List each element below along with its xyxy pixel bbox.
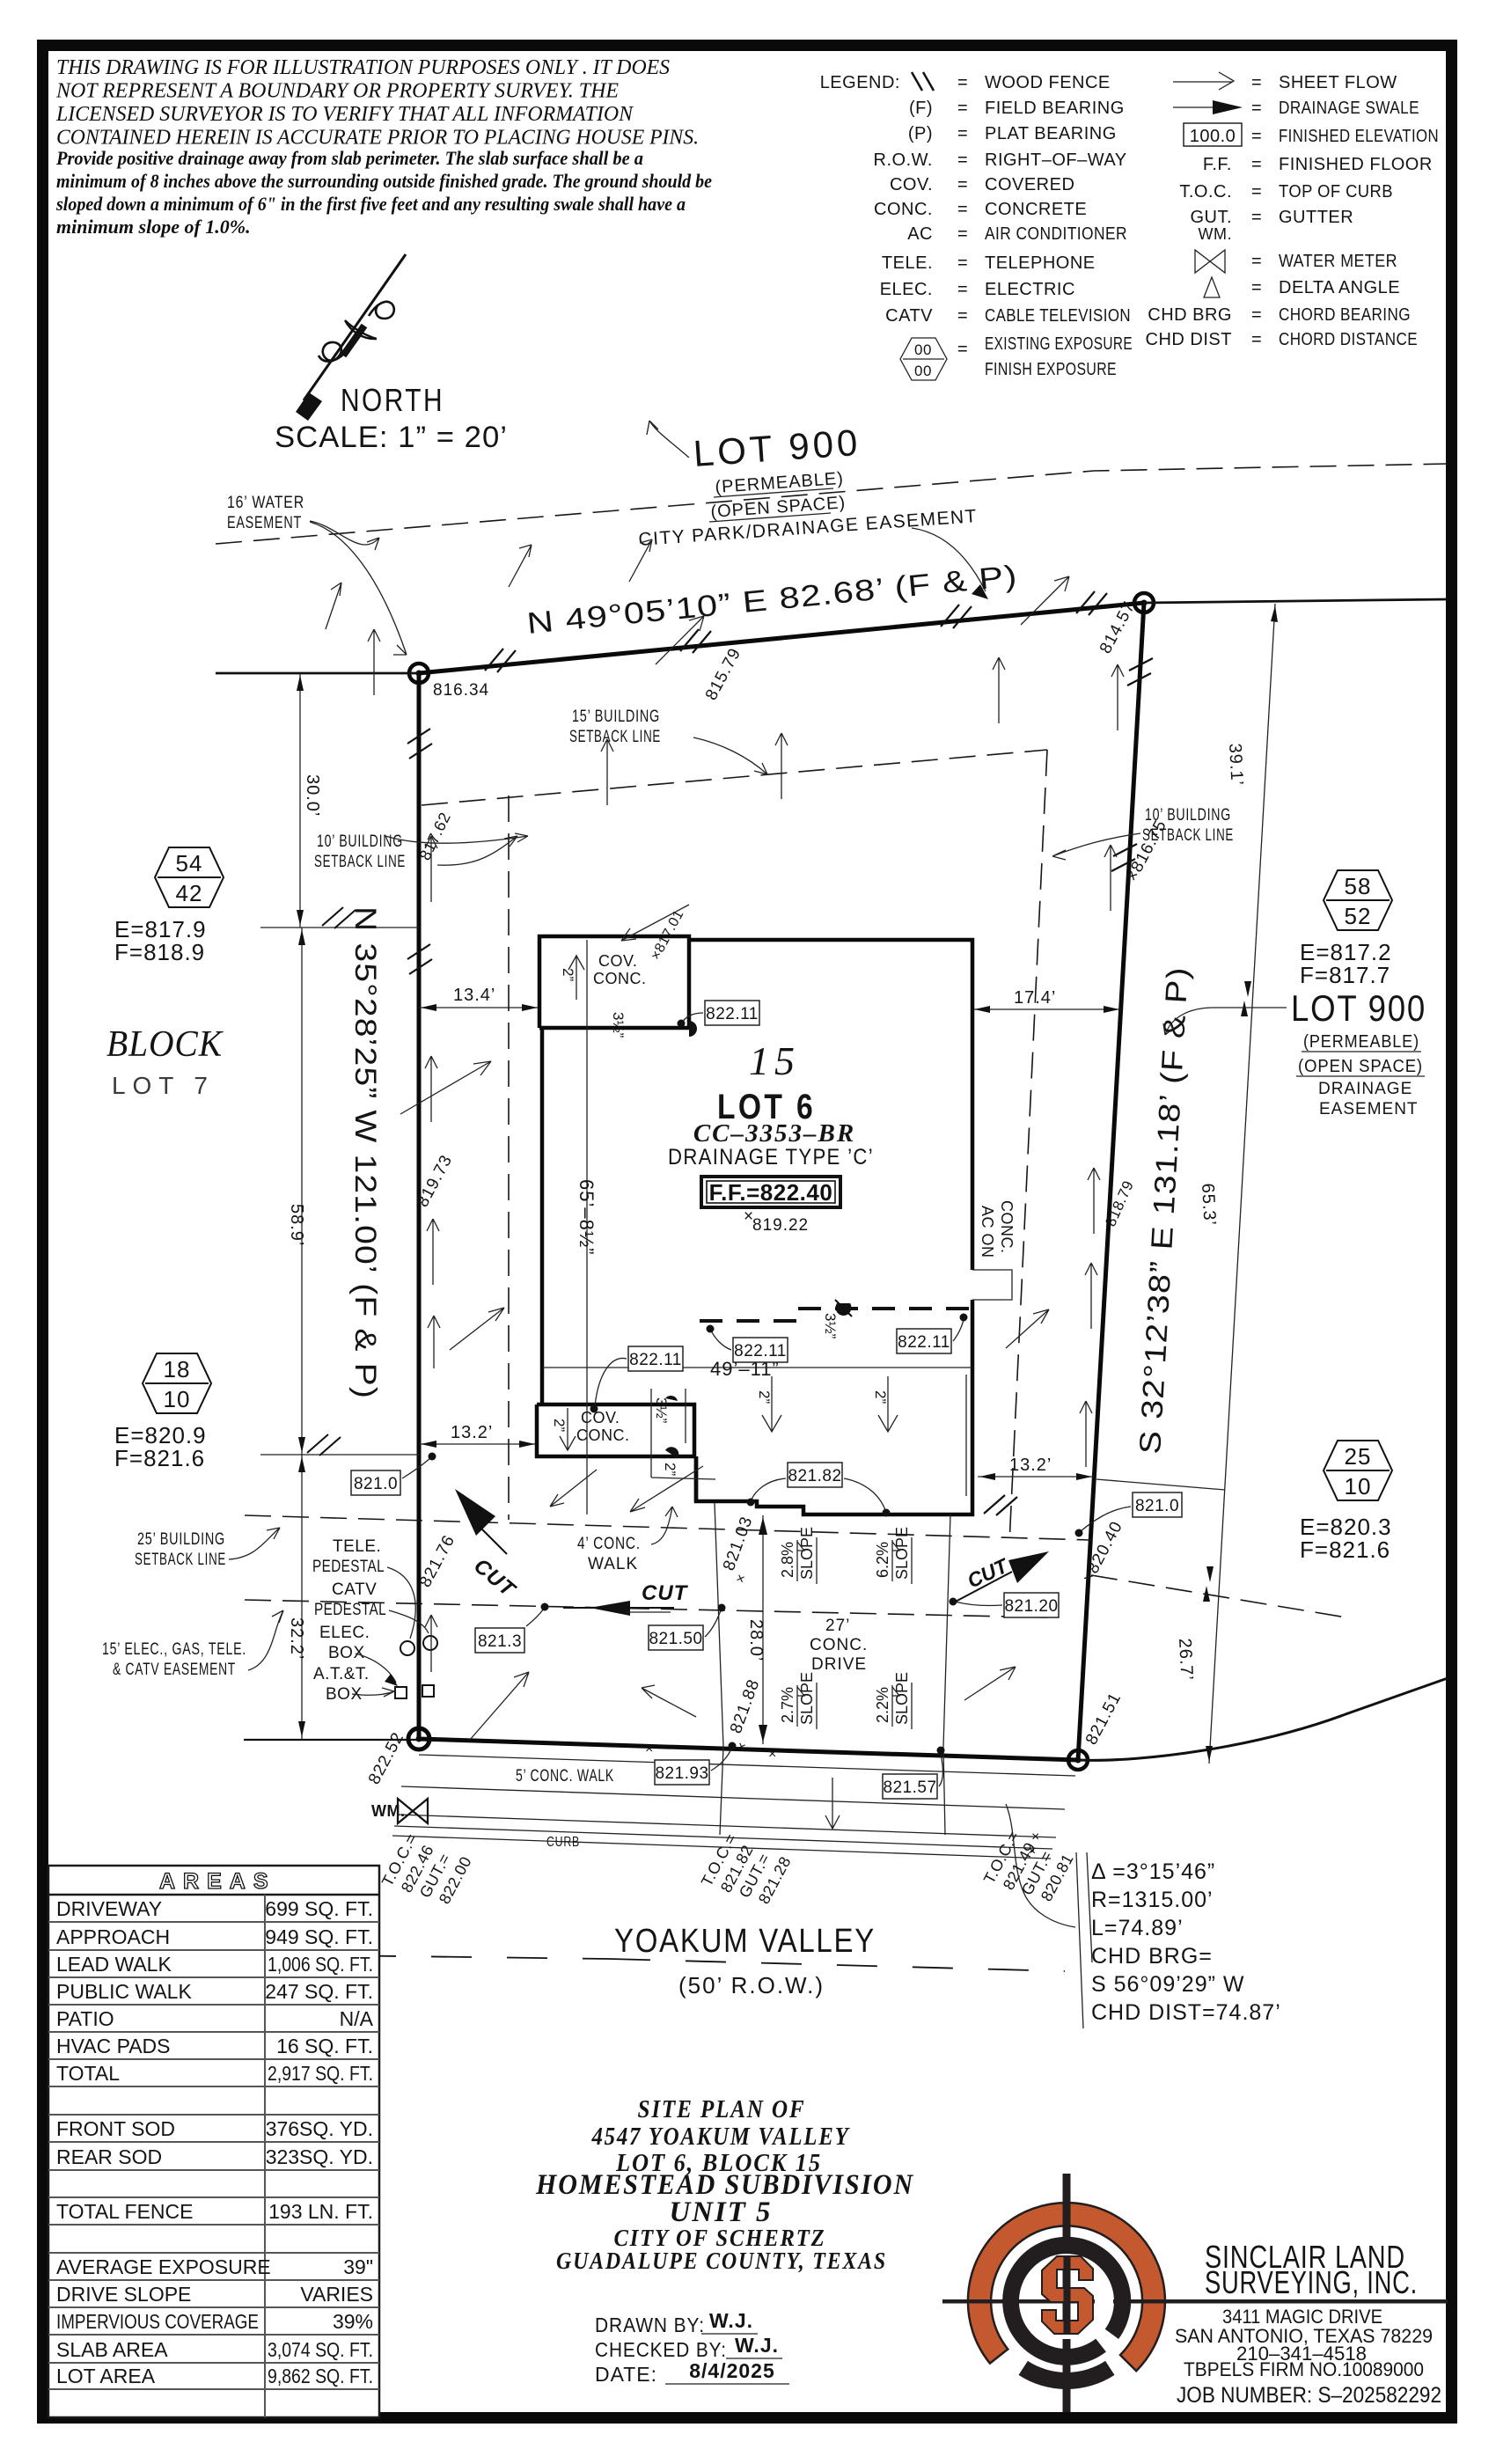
svg-text:699 SQ. FT.: 699 SQ. FT. [265, 1897, 373, 1920]
svg-text:N 35°28’25” W 121.00’ (F & P): N 35°28’25” W 121.00’ (F & P) [348, 906, 382, 1399]
svg-text:AIR CONDITIONER: AIR CONDITIONER [985, 224, 1127, 244]
svg-text:CC–3353–BR: CC–3353–BR [693, 1119, 855, 1148]
svg-text:SITE PLAN OF: SITE PLAN OF [638, 2096, 806, 2123]
svg-text:(50’ R.O.W.): (50’ R.O.W.) [678, 1972, 825, 1998]
svg-text:SCALE: 1” = 20’: SCALE: 1” = 20’ [275, 421, 508, 454]
svg-text:LOT AREA: LOT AREA [56, 2365, 156, 2387]
svg-text:×: × [645, 1742, 653, 1756]
svg-text:821.3: 821.3 [478, 1632, 522, 1651]
svg-text:323SQ. YD.: 323SQ. YD. [266, 2145, 373, 2168]
svg-text:2”: 2” [756, 1390, 773, 1404]
svg-text:AC ON: AC ON [979, 1206, 996, 1258]
svg-text:SETBACK LINE: SETBACK LINE [569, 728, 661, 746]
svg-text:DATE:: DATE: [595, 2363, 657, 2386]
svg-text:=: = [957, 175, 968, 194]
svg-text:822.11: 822.11 [734, 1342, 787, 1360]
svg-text:APPROACH: APPROACH [56, 1925, 170, 1948]
svg-text:CONC.: CONC. [810, 1636, 868, 1654]
svg-text:GUT.: GUT. [1190, 208, 1232, 227]
svg-text:LEAD WALK: LEAD WALK [56, 1953, 172, 1976]
svg-text:THIS DRAWING IS FOR ILLUSTRATI: THIS DRAWING IS FOR ILLUSTRATION PURPOSE… [56, 56, 670, 79]
svg-text:13.2’: 13.2’ [451, 1423, 493, 1442]
svg-text:2”: 2” [551, 1419, 568, 1432]
svg-text:& CATV EASEMENT: & CATV EASEMENT [113, 1661, 236, 1679]
svg-text:CHECKED BY:: CHECKED BY: [595, 2338, 727, 2361]
svg-text:(P): (P) [908, 124, 933, 143]
svg-text:58: 58 [1345, 873, 1372, 899]
svg-text:=: = [1251, 155, 1262, 174]
svg-text:54: 54 [176, 850, 203, 876]
svg-text:COV.: COV. [581, 1409, 620, 1426]
svg-text:2”: 2” [560, 968, 576, 981]
svg-text:GUTTER: GUTTER [1279, 208, 1353, 227]
svg-text:00: 00 [914, 341, 932, 358]
svg-text:WOOD FENCE: WOOD FENCE [985, 73, 1111, 92]
svg-text:CHD BRG=: CHD BRG= [1091, 1944, 1213, 1969]
svg-text:821.20: 821.20 [1004, 1597, 1058, 1616]
svg-text:ELECTRIC: ELECTRIC [985, 280, 1075, 299]
svg-text:821.93: 821.93 [655, 1764, 708, 1783]
svg-text:CONC.: CONC. [874, 200, 933, 219]
svg-text:822.11: 822.11 [629, 1351, 682, 1369]
svg-text:SLOPE: SLOPE [798, 1672, 816, 1725]
svg-text:F=817.7: F=817.7 [1300, 962, 1390, 988]
svg-text:CHD BRG: CHD BRG [1148, 305, 1232, 325]
svg-text:DRAINAGE SWALE: DRAINAGE SWALE [1279, 99, 1419, 118]
svg-text:NORTH: NORTH [341, 382, 444, 418]
svg-text:SLOPE: SLOPE [893, 1672, 911, 1725]
svg-text:25: 25 [1345, 1443, 1372, 1470]
svg-text:26.7’: 26.7’ [1175, 1638, 1197, 1681]
svg-text:9,862 SQ. FT.: 9,862 SQ. FT. [268, 2365, 373, 2387]
svg-text:×: × [1031, 1830, 1039, 1844]
svg-text:10: 10 [164, 1386, 191, 1412]
svg-text:CURB: CURB [546, 1835, 580, 1850]
svg-text:LOT 7: LOT 7 [112, 1072, 210, 1099]
svg-text:6.2%: 6.2% [874, 1542, 891, 1578]
svg-text:GUADALUPE COUNTY, TEXAS: GUADALUPE COUNTY, TEXAS [556, 2248, 887, 2274]
svg-text:TELE.: TELE. [882, 253, 933, 273]
svg-text:=: = [1251, 127, 1262, 146]
svg-text:LOT 900: LOT 900 [1291, 987, 1426, 1029]
svg-text:F.F.=822.40: F.F.=822.40 [709, 1179, 833, 1206]
svg-text:AVERAGE EXPOSURE: AVERAGE EXPOSURE [56, 2255, 271, 2278]
svg-text:3½”: 3½” [653, 1397, 670, 1424]
svg-text:N/A: N/A [340, 2007, 374, 2030]
svg-text:WM.: WM. [1199, 225, 1232, 243]
svg-text:WALK: WALK [588, 1555, 638, 1573]
svg-text:=: = [1251, 99, 1262, 118]
svg-text:EXISTING EXPOSURE: EXISTING EXPOSURE [985, 334, 1133, 354]
svg-text:376SQ. YD.: 376SQ. YD. [266, 2117, 373, 2140]
svg-text:=: = [957, 280, 968, 299]
svg-text:SLAB AREA: SLAB AREA [56, 2338, 168, 2361]
svg-text:15: 15 [749, 1038, 800, 1083]
svg-text:=: = [1251, 305, 1262, 325]
svg-text:T.O.C.: T.O.C. [1179, 182, 1232, 202]
svg-text:S 56°09’29” W: S 56°09’29” W [1091, 1972, 1244, 1997]
svg-text:=: = [957, 150, 968, 170]
svg-text:822.11: 822.11 [706, 1005, 759, 1023]
svg-text:FINISH EXPOSURE: FINISH EXPOSURE [985, 360, 1117, 379]
svg-text:R.O.W.: R.O.W. [874, 150, 933, 170]
svg-text:TELEPHONE: TELEPHONE [985, 253, 1096, 273]
svg-text:PATIO: PATIO [56, 2007, 114, 2030]
svg-text:Provide positive drainage away: Provide positive drainage away from slab… [55, 147, 643, 169]
svg-text:2”: 2” [662, 1463, 678, 1476]
svg-text:CHD DIST: CHD DIST [1146, 330, 1232, 349]
svg-text:F=818.9: F=818.9 [114, 939, 205, 965]
svg-text:BOX: BOX [328, 1644, 365, 1662]
svg-text:CHORD DISTANCE: CHORD DISTANCE [1279, 330, 1418, 349]
svg-text:4547 YOAKUM VALLEY: 4547 YOAKUM VALLEY [591, 2123, 851, 2151]
svg-text:VARIES: VARIES [300, 2283, 373, 2306]
svg-text:16 SQ. FT.: 16 SQ. FT. [276, 2035, 373, 2057]
svg-text:PEDESTAL: PEDESTAL [312, 1558, 385, 1576]
svg-text:TOTAL: TOTAL [56, 2062, 120, 2085]
svg-text:F=821.6: F=821.6 [114, 1445, 205, 1471]
svg-text:8/4/2025: 8/4/2025 [689, 2359, 775, 2382]
svg-text:F.F.: F.F. [1203, 155, 1232, 174]
svg-text:CONC.: CONC. [593, 970, 647, 987]
svg-text:949 SQ. FT.: 949 SQ. FT. [265, 1925, 373, 1948]
svg-text:821.57: 821.57 [883, 1778, 936, 1797]
svg-text:DRIVEWAY: DRIVEWAY [56, 1897, 162, 1920]
svg-text:CHORD BEARING: CHORD BEARING [1279, 305, 1411, 325]
svg-text:247 SQ. FT.: 247 SQ. FT. [265, 1980, 373, 2003]
svg-text:=: = [1251, 182, 1262, 202]
svg-text:TOTAL FENCE: TOTAL FENCE [56, 2200, 194, 2223]
svg-text:821.0: 821.0 [1135, 1497, 1179, 1515]
svg-text:WM.: WM. [371, 1802, 405, 1820]
svg-text:17.4’: 17.4’ [1014, 988, 1056, 1008]
svg-text:YOAKUM VALLEY: YOAKUM VALLEY [614, 1923, 876, 1960]
svg-text:42: 42 [176, 880, 203, 906]
svg-text:CONC.: CONC. [576, 1426, 630, 1444]
svg-text:(PERMEABLE): (PERMEABLE) [1303, 1032, 1419, 1052]
svg-text:sloped down a minimum of 6" in: sloped down a minimum of 6" in the first… [55, 193, 686, 215]
svg-text:2.2%: 2.2% [874, 1687, 891, 1723]
svg-text:AREAS: AREAS [159, 1869, 276, 1894]
svg-text:25’ BUILDING: 25’ BUILDING [137, 1530, 225, 1549]
svg-text:=: = [957, 224, 968, 244]
svg-text:39%: 39% [333, 2310, 373, 2333]
svg-text:5’ CONC. WALK: 5’ CONC. WALK [516, 1767, 614, 1786]
svg-text:SLOPE: SLOPE [893, 1527, 911, 1580]
svg-text:2”: 2” [872, 1390, 889, 1404]
svg-text:CONCRETE: CONCRETE [985, 200, 1087, 219]
svg-text:27’: 27’ [825, 1617, 850, 1635]
svg-text:821.82: 821.82 [788, 1467, 841, 1485]
svg-text:(OPEN SPACE): (OPEN SPACE) [1298, 1057, 1423, 1076]
svg-text:TBPELS FIRM NO.10089000: TBPELS FIRM NO.10089000 [1184, 2358, 1424, 2380]
svg-text:=: = [957, 340, 968, 359]
svg-text:REAR SOD: REAR SOD [56, 2145, 162, 2168]
svg-text:W.J.: W.J. [709, 2309, 753, 2332]
svg-text:100.0: 100.0 [1190, 127, 1236, 146]
svg-text:AC: AC [907, 224, 933, 244]
svg-text:=: = [1251, 330, 1262, 349]
svg-text:DRAINAGE: DRAINAGE [1318, 1080, 1412, 1098]
svg-text:TELE.: TELE. [333, 1537, 381, 1556]
svg-text:CONC.: CONC. [998, 1200, 1016, 1254]
svg-text:2.8%: 2.8% [779, 1542, 796, 1578]
svg-text:COV.: COV. [598, 952, 637, 970]
svg-text:=: = [1251, 278, 1262, 297]
svg-text:2.7%: 2.7% [779, 1687, 796, 1723]
svg-text:Δ =3°15’46”: Δ =3°15’46” [1091, 1859, 1215, 1884]
svg-text:10: 10 [1345, 1473, 1372, 1500]
svg-text:CATV: CATV [885, 306, 933, 326]
svg-text:FINISHED FLOOR: FINISHED FLOOR [1279, 155, 1433, 174]
svg-text:=: = [1251, 252, 1262, 271]
svg-text:13.4’: 13.4’ [453, 986, 495, 1005]
svg-text:CABLE TELEVISION: CABLE TELEVISION [985, 306, 1131, 326]
svg-text:CONTAINED HEREIN IS ACCURATE P: CONTAINED HEREIN IS ACCURATE PRIOR TO PL… [56, 127, 699, 150]
svg-text:39": 39" [343, 2255, 373, 2278]
svg-text:2,917 SQ. FT.: 2,917 SQ. FT. [268, 2062, 373, 2085]
svg-text:PLAT BEARING: PLAT BEARING [985, 124, 1117, 143]
svg-text:DRAWN BY:: DRAWN BY: [595, 2314, 705, 2336]
svg-text:15’ BUILDING: 15’ BUILDING [572, 708, 660, 726]
svg-text:W.J.: W.J. [735, 2334, 779, 2357]
svg-text:=: = [1251, 208, 1262, 227]
svg-text:COV.: COV. [890, 175, 933, 194]
svg-text:32.2’: 32.2’ [287, 1617, 306, 1660]
svg-text:L=74.89’: L=74.89’ [1091, 1916, 1184, 1940]
svg-text:CUT: CUT [642, 1581, 689, 1605]
svg-text:52: 52 [1345, 903, 1372, 929]
svg-text:13.2’: 13.2’ [1009, 1456, 1052, 1475]
svg-text:193 LN. FT.: 193 LN. FT. [268, 2200, 373, 2223]
svg-text:BLOCK: BLOCK [106, 1024, 224, 1065]
svg-text:JOB NUMBER: S–202582292: JOB NUMBER: S–202582292 [1177, 2383, 1441, 2408]
svg-text:F=821.6: F=821.6 [1300, 1536, 1390, 1563]
svg-text:A.T.&T.: A.T.&T. [313, 1665, 370, 1683]
svg-text:15’ ELEC., GAS, TELE.: 15’ ELEC., GAS, TELE. [102, 1640, 246, 1659]
svg-text:COVERED: COVERED [985, 175, 1074, 194]
svg-text:DRAINAGE TYPE ’C’: DRAINAGE TYPE ’C’ [668, 1145, 874, 1170]
svg-text:3½”: 3½” [822, 1313, 839, 1339]
svg-text:HVAC PADS: HVAC PADS [56, 2035, 171, 2057]
svg-text:821.0: 821.0 [354, 1475, 398, 1493]
svg-text:FINISHED ELEVATION: FINISHED ELEVATION [1279, 127, 1439, 146]
svg-text:UNIT 5: UNIT 5 [670, 2196, 773, 2228]
svg-text:minimum slope of 1.0%.: minimum slope of 1.0%. [56, 216, 251, 238]
svg-text:ELEC.: ELEC. [880, 280, 933, 299]
svg-text:4’ CONC.: 4’ CONC. [577, 1535, 641, 1553]
svg-text:FRONT SOD: FRONT SOD [56, 2117, 175, 2140]
svg-text:(F): (F) [909, 99, 933, 118]
svg-text:65.3’: 65.3’ [1198, 1183, 1220, 1226]
svg-text:FIELD BEARING: FIELD BEARING [985, 99, 1125, 118]
svg-text:ELEC.: ELEC. [319, 1624, 370, 1642]
svg-text:DELTA ANGLE: DELTA ANGLE [1279, 278, 1400, 297]
svg-text:=: = [957, 253, 968, 273]
svg-text:SLOPE: SLOPE [798, 1527, 816, 1580]
svg-text:SHEET FLOW: SHEET FLOW [1279, 73, 1397, 92]
svg-text:CHD DIST=74.87’: CHD DIST=74.87’ [1091, 2000, 1281, 2025]
svg-text:65’–8½”: 65’–8½” [576, 1179, 598, 1256]
svg-text:39.1’: 39.1’ [1225, 743, 1247, 786]
svg-text:1,006 SQ. FT.: 1,006 SQ. FT. [268, 1953, 373, 1976]
svg-text:=: = [957, 99, 968, 118]
svg-text:28.0’: 28.0’ [746, 1619, 766, 1661]
svg-text:EASEMENT: EASEMENT [1319, 1100, 1419, 1118]
svg-text:SETBACK LINE: SETBACK LINE [314, 853, 406, 871]
svg-text:=: = [1251, 73, 1262, 92]
svg-text:EASEMENT: EASEMENT [227, 514, 302, 532]
svg-text:822.11: 822.11 [898, 1333, 950, 1352]
svg-text:LICENSED SURVEYOR IS TO VERIFY: LICENSED SURVEYOR IS TO VERIFY THAT ALL … [55, 103, 634, 126]
svg-text:819.22: 819.22 [752, 1216, 809, 1235]
svg-text:IMPERVIOUS COVERAGE: IMPERVIOUS COVERAGE [56, 2310, 259, 2333]
svg-text:821.50: 821.50 [649, 1630, 702, 1648]
svg-text:3½”: 3½” [610, 1012, 627, 1038]
svg-text:3,074 SQ. FT.: 3,074 SQ. FT. [268, 2338, 373, 2361]
svg-text:RIGHT–OF–WAY: RIGHT–OF–WAY [985, 150, 1127, 170]
svg-text:=: = [957, 306, 968, 326]
svg-text:58.9’: 58.9’ [287, 1204, 306, 1246]
svg-text:PUBLIC WALK: PUBLIC WALK [56, 1980, 192, 2003]
svg-text:SETBACK LINE: SETBACK LINE [135, 1551, 226, 1569]
svg-text:=: = [957, 200, 968, 219]
svg-text:×: × [768, 1747, 776, 1762]
svg-text:10’ BUILDING: 10’ BUILDING [317, 832, 403, 851]
svg-text:WATER METER: WATER METER [1279, 252, 1397, 271]
svg-text:DRIVE: DRIVE [811, 1655, 867, 1674]
svg-text:R=1315.00’: R=1315.00’ [1091, 1888, 1214, 1912]
svg-text:SURVEYING, INC.: SURVEYING, INC. [1205, 2264, 1418, 2300]
svg-text:NOT REPRESENT A BOUNDARY OR PR: NOT REPRESENT A BOUNDARY OR PROPERTY SUR… [55, 80, 619, 103]
svg-text:TOP OF CURB: TOP OF CURB [1279, 182, 1393, 202]
svg-text:=: = [957, 124, 968, 143]
svg-text:CATV: CATV [332, 1580, 377, 1599]
svg-text:DRIVE SLOPE: DRIVE SLOPE [56, 2283, 191, 2306]
svg-text:30.0’: 30.0’ [303, 774, 322, 817]
svg-text:00: 00 [914, 363, 932, 379]
svg-text:16’ WATER: 16’ WATER [227, 494, 304, 512]
svg-text:minimum of 8 inches above the: minimum of 8 inches above the surroundin… [56, 170, 712, 192]
svg-text:18: 18 [164, 1356, 191, 1382]
svg-text:PEDESTAL: PEDESTAL [314, 1601, 386, 1619]
svg-text:816.34: 816.34 [433, 681, 489, 700]
svg-text:LEGEND:: LEGEND: [820, 73, 900, 92]
svg-text:=: = [957, 73, 968, 92]
